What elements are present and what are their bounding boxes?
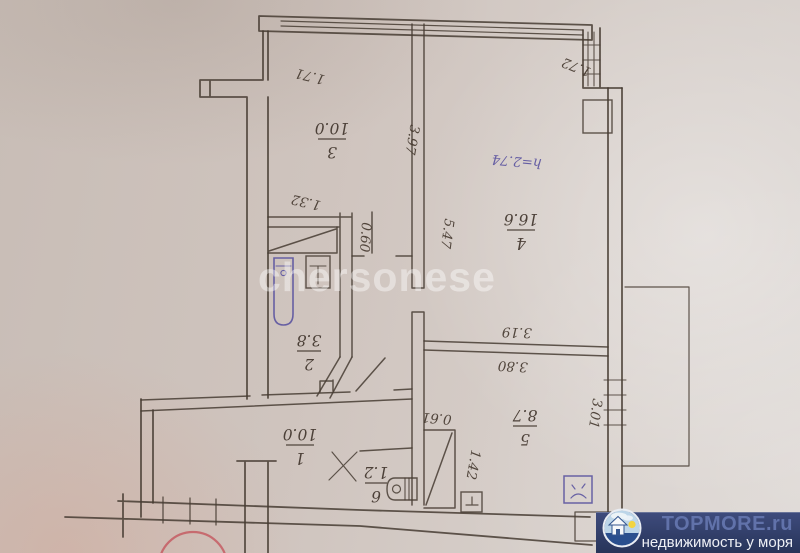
watermark-text: chersonese	[258, 254, 496, 300]
logo-brand-text: TOPMORE.ru	[662, 515, 793, 534]
closet-bathroom	[268, 227, 337, 253]
svg-text:6: 6	[371, 487, 381, 505]
svg-text:10.0: 10.0	[315, 119, 350, 137]
topmore-logo: TOPMORE.ru недвижимость у моря	[596, 512, 800, 553]
room-label-6: 6 1.2	[364, 463, 389, 505]
dim-3-97: 3.97	[401, 124, 422, 157]
door-leaf-room1	[356, 358, 385, 391]
logo-tagline-text: недвижимость у моря	[642, 534, 793, 551]
dim-1-71: 1.71	[294, 64, 327, 87]
closet-kitchen	[424, 430, 455, 508]
svg-text:5: 5	[520, 430, 530, 448]
floor-plan-drawing: 3 10.0 4 16.6 2 3.8 1 10.0 5 8.7 6 1.2	[0, 0, 800, 553]
svg-text:3.8: 3.8	[297, 331, 322, 349]
dim-0-60: 0.60	[356, 222, 374, 254]
svg-text:16.6: 16.6	[504, 210, 539, 228]
ceiling-height: h=2.74	[491, 151, 542, 171]
svg-text:8.7: 8.7	[513, 406, 538, 424]
electric-panel-icon	[461, 492, 482, 512]
dim-3-01: 3.01	[585, 398, 605, 430]
logo-globe-icon	[602, 508, 642, 548]
svg-text:4: 4	[516, 234, 527, 252]
door-cross-toilet	[329, 452, 357, 481]
svg-text:1: 1	[295, 449, 305, 467]
dim-1-32: 1.32	[290, 191, 323, 213]
room-label-3: 3 10.0	[315, 119, 350, 161]
svg-text:1.2: 1.2	[364, 463, 389, 481]
dim-3-19: 3.19	[501, 323, 532, 340]
svg-text:10.0: 10.0	[283, 425, 318, 443]
stove-icon	[564, 476, 592, 503]
room-label-4: 4 16.6	[504, 210, 539, 252]
svg-text:3: 3	[327, 143, 337, 161]
room-label-2: 2 3.8	[297, 331, 322, 373]
svg-text:2: 2	[304, 355, 315, 373]
room-labels: 3 10.0 4 16.6 2 3.8 1 10.0 5 8.7 6 1.2	[283, 119, 539, 505]
room-label-5: 5 8.7	[513, 406, 538, 448]
red-stamp	[159, 532, 227, 553]
dim-3-80: 3.80	[497, 357, 528, 375]
dim-5-47: 5.47	[437, 218, 457, 250]
dim-0-61: 0.61	[421, 409, 452, 428]
balcony-outline	[622, 287, 689, 466]
room-label-1: 1 10.0	[283, 425, 318, 467]
floor-plan-photo: 3 10.0 4 16.6 2 3.8 1 10.0 5 8.7 6 1.2	[0, 0, 800, 553]
dim-1-42: 1.42	[462, 449, 483, 481]
